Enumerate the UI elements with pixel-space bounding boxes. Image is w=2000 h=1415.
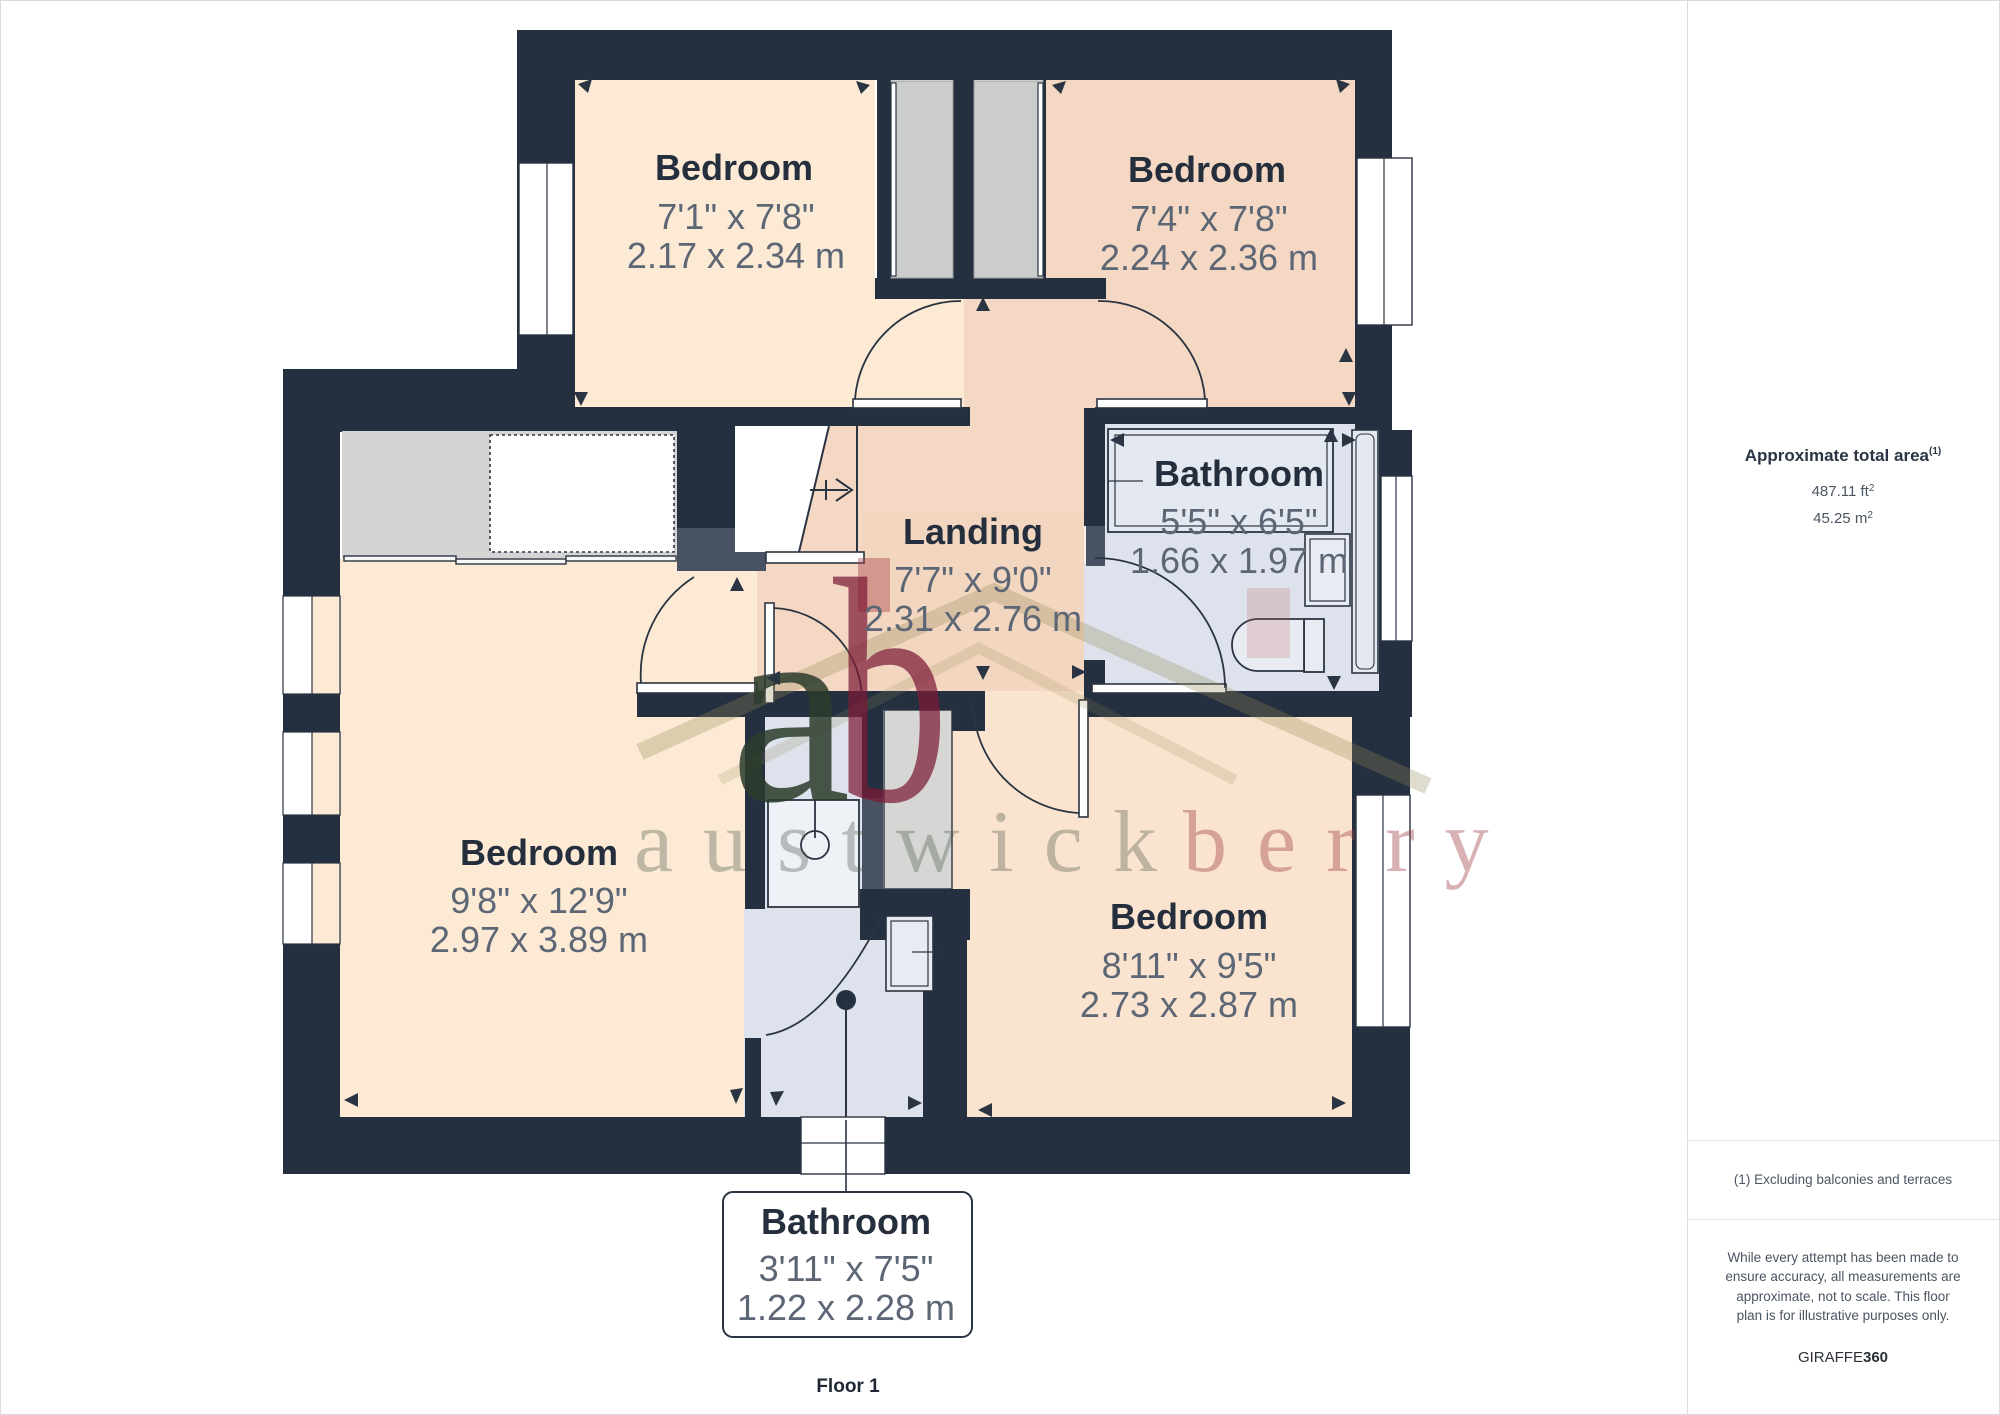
svg-text:7'4" x 7'8": 7'4" x 7'8"	[1130, 198, 1287, 239]
svg-text:While every attempt has been m: While every attempt has been made to	[1727, 1250, 1958, 1265]
svg-text:2.17 x 2.34 m: 2.17 x 2.34 m	[627, 235, 845, 276]
svg-text:2.73 x 2.87 m: 2.73 x 2.87 m	[1080, 984, 1298, 1025]
svg-text:plan is for illustrative purpo: plan is for illustrative purposes only.	[1737, 1308, 1950, 1323]
svg-text:3'11" x 7'5": 3'11" x 7'5"	[759, 1248, 934, 1289]
svg-text:Approximate total area(1): Approximate total area(1)	[1745, 446, 1941, 465]
svg-text:austwick: austwick	[634, 794, 1187, 891]
svg-text:8'11" x 9'5": 8'11" x 9'5"	[1102, 945, 1277, 986]
svg-text:Bedroom: Bedroom	[655, 147, 813, 188]
svg-text:2.24 x 2.36 m: 2.24 x 2.36 m	[1100, 237, 1318, 278]
svg-text:Bathroom: Bathroom	[761, 1201, 931, 1242]
svg-text:ensure accuracy, all measureme: ensure accuracy, all measurements are	[1725, 1269, 1960, 1284]
svg-text:7'7" x 9'0": 7'7" x 9'0"	[894, 559, 1051, 600]
svg-text:Bedroom: Bedroom	[1110, 896, 1268, 937]
svg-text:Bathroom: Bathroom	[1154, 453, 1324, 494]
svg-text:5'5" x 6'5": 5'5" x 6'5"	[1160, 501, 1317, 542]
svg-text:GIRAFFE360: GIRAFFE360	[1798, 1349, 1888, 1366]
svg-text:(1) Excluding balconies and te: (1) Excluding balconies and terraces	[1734, 1172, 1953, 1187]
svg-text:45.25 m2: 45.25 m2	[1813, 510, 1873, 527]
svg-text:Floor 1: Floor 1	[816, 1376, 880, 1397]
svg-text:2.31 x 2.76 m: 2.31 x 2.76 m	[864, 598, 1082, 639]
svg-text:Bedroom: Bedroom	[1128, 149, 1286, 190]
svg-text:487.11 ft2: 487.11 ft2	[1812, 483, 1875, 500]
svg-text:1.22 x 2.28 m: 1.22 x 2.28 m	[737, 1287, 955, 1328]
svg-text:approximate, not to scale. Thi: approximate, not to scale. This floor	[1736, 1289, 1950, 1304]
svg-text:7'1" x 7'8": 7'1" x 7'8"	[657, 196, 814, 237]
svg-text:Landing: Landing	[903, 511, 1043, 552]
svg-text:Bedroom: Bedroom	[460, 832, 618, 873]
svg-text:berry: berry	[1183, 794, 1519, 891]
svg-text:9'8" x 12'9": 9'8" x 12'9"	[450, 880, 627, 921]
svg-text:2.97 x 3.89 m: 2.97 x 3.89 m	[430, 919, 648, 960]
svg-text:1.66 x 1.97 m: 1.66 x 1.97 m	[1130, 540, 1348, 581]
